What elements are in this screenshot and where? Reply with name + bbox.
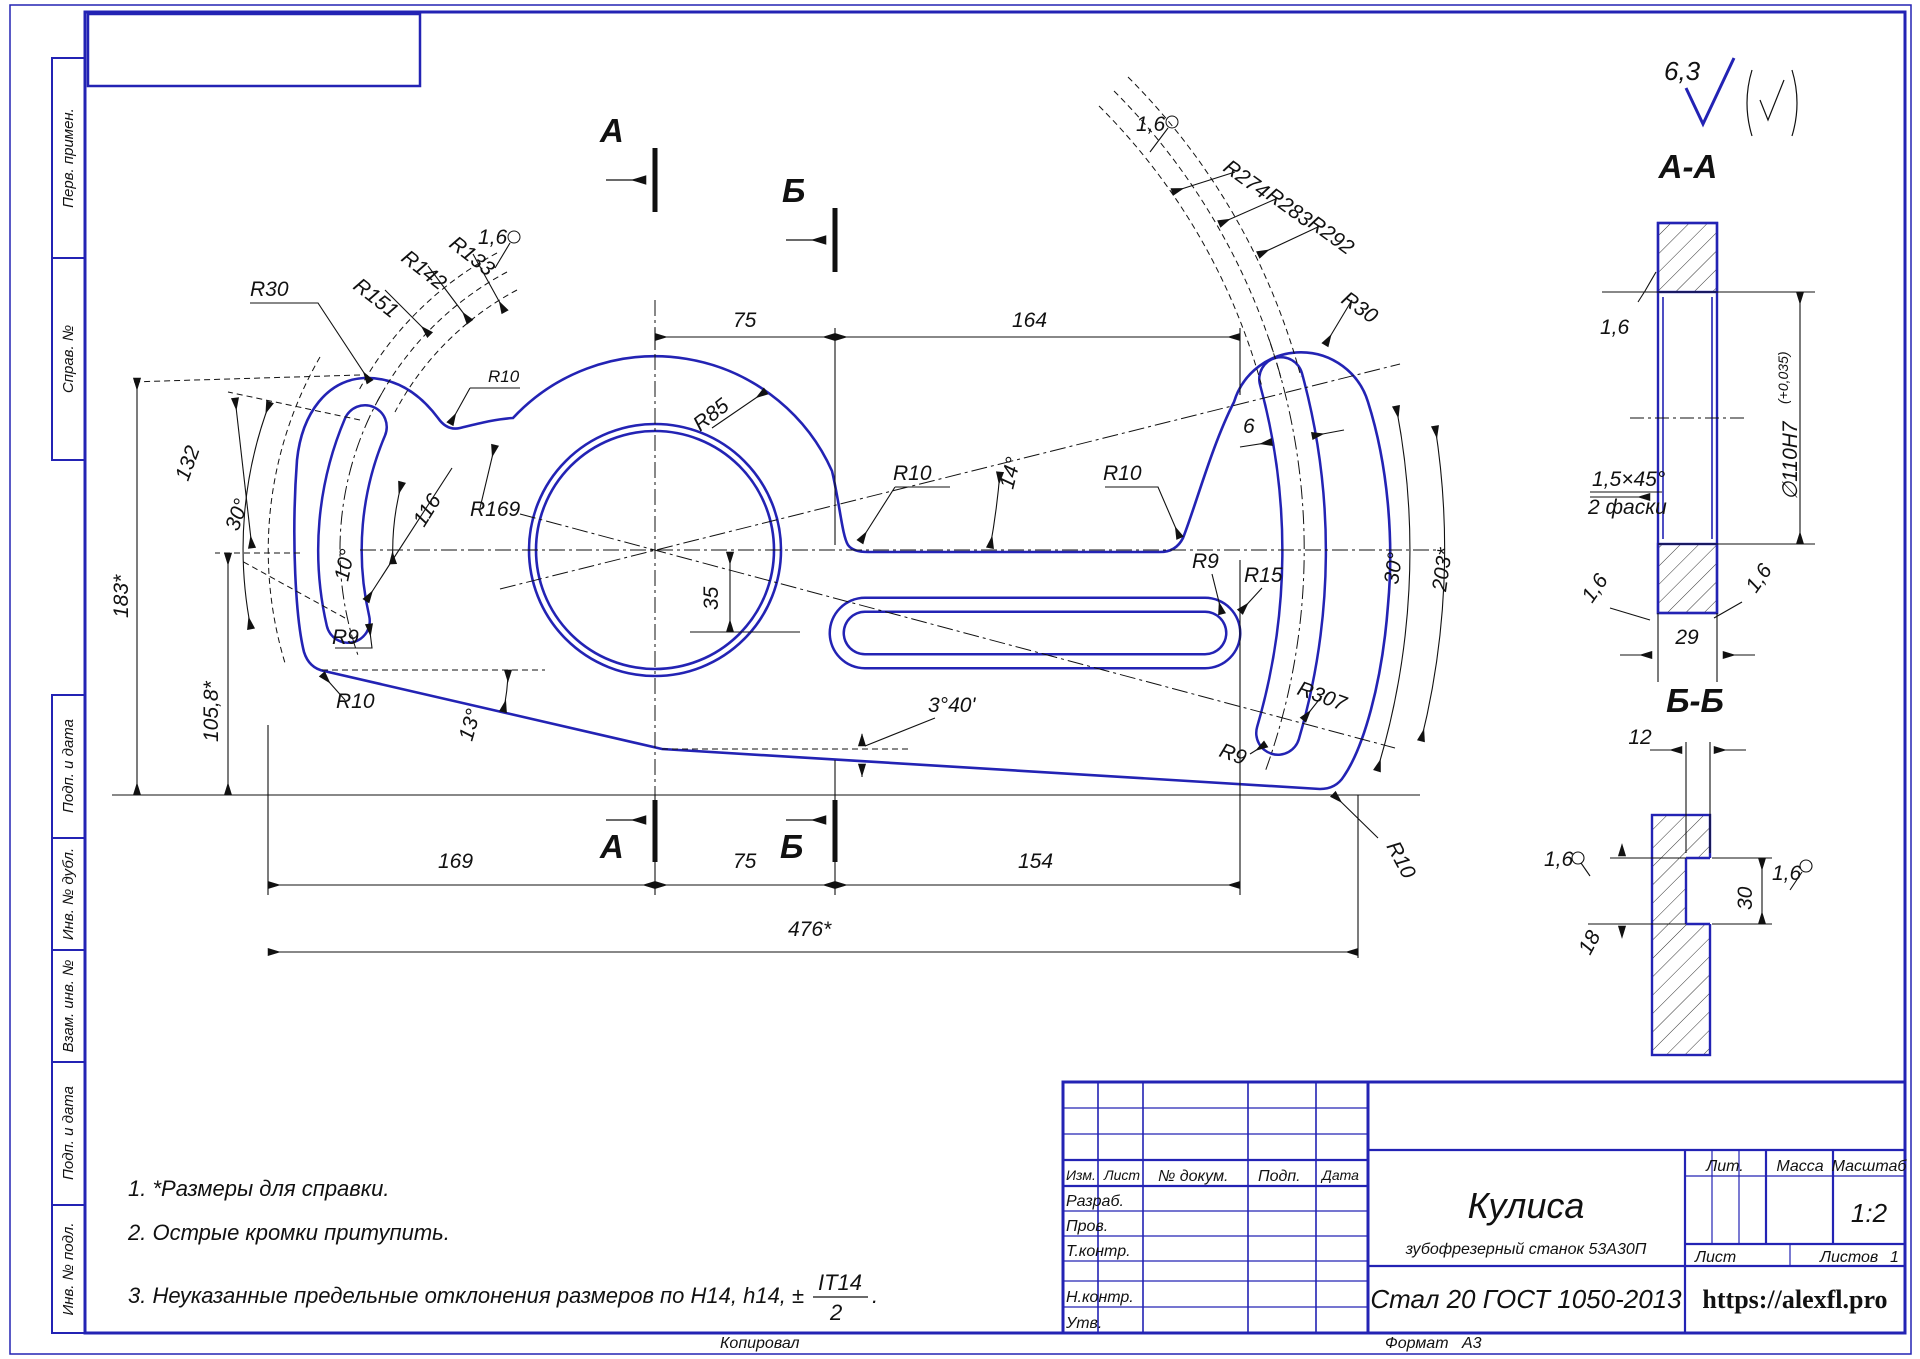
dim-label: ∅110H7: [1779, 420, 1802, 500]
dim-label: 30°: [1380, 551, 1407, 586]
tb-label: Пров.: [1066, 1218, 1108, 1235]
dim-label: 154: [1018, 850, 1053, 873]
section-markers: [606, 148, 835, 862]
dim-label: 29: [1674, 626, 1699, 649]
tb-label: Т.контр.: [1066, 1243, 1131, 1260]
dim-label: 1,6: [478, 226, 508, 249]
bb-notch-fill: [1686, 858, 1714, 924]
tb-label: Разраб.: [1066, 1193, 1124, 1210]
main-view: R30 R151 R142 R133 1,6 R10 75 164 R274 R…: [110, 77, 1457, 958]
leader-340: [865, 718, 935, 746]
main-view-labels: R30 R151 R142 R133 1,6 R10 75 164 R274 R…: [110, 112, 1457, 941]
bracket-right: [1792, 70, 1797, 136]
dim-label: 132: [171, 443, 205, 484]
tb-label: Лист: [1103, 1167, 1140, 1183]
section-letter-a-bottom: А: [599, 828, 624, 865]
copied-label: Копировал: [720, 1335, 800, 1352]
dim-label: R30: [250, 278, 289, 301]
material: Стал 20 ГОСТ 1050-2013: [1370, 1284, 1682, 1314]
tb-value: 1: [1890, 1249, 1899, 1266]
margin-label: Справ. №: [60, 325, 77, 393]
tb-label: № докум.: [1158, 1168, 1228, 1185]
format-label: Формат: [1385, 1335, 1449, 1352]
aa-hatch-bottom: [1658, 544, 1717, 613]
dim-label: R10: [893, 462, 932, 485]
dim-label: R9: [332, 626, 359, 649]
dimension-lines: [112, 128, 1445, 958]
section-bb: Б-Б 12 1,6 18 30 1,6: [1544, 682, 1812, 1055]
sheet-frame: [10, 5, 1911, 1354]
rough-circle-left: [508, 231, 520, 243]
rough-circle: [1800, 860, 1812, 872]
incline-centerline-up: [500, 364, 1400, 589]
dim-label: R151: [349, 274, 403, 323]
dim-label: 1,6: [1600, 316, 1630, 339]
margin-label: Перв. примен.: [60, 108, 77, 208]
margin-label: Подп. и дата: [60, 1086, 77, 1180]
leader-r10-arm-right: [1105, 487, 1180, 538]
tb-label: Листов: [1819, 1249, 1878, 1266]
tb-label: Масштаб: [1832, 1158, 1908, 1175]
note-line: 3. Неуказанные предельные отклонения раз…: [128, 1283, 804, 1308]
dim-label: R9: [1192, 550, 1219, 573]
ext-dashed: [130, 375, 360, 382]
dim-label: 1,6: [1741, 559, 1777, 596]
dim-6-a: [1240, 442, 1272, 447]
dim-label: 12: [1628, 726, 1652, 749]
dim-label: R292: [1304, 211, 1358, 259]
tb-label: Лист: [1694, 1249, 1736, 1266]
dim-116: [366, 468, 452, 601]
inner-frame: [85, 12, 1905, 1333]
section-letter-b-bottom: Б: [780, 828, 803, 865]
dim-label: (+0,035): [1775, 351, 1791, 404]
dim-label: R169: [470, 498, 521, 521]
tb-label: Н.контр.: [1066, 1289, 1134, 1306]
rough-tail: [1581, 863, 1590, 876]
bb-geometry: [1652, 815, 1714, 1055]
dim-label: R10: [1382, 838, 1421, 883]
dim-label: 1,5×45°: [1592, 468, 1665, 491]
rough-check: [1638, 272, 1656, 302]
dim-label: R10: [336, 690, 375, 713]
dim-label: 169: [438, 850, 473, 873]
section-title: Б-Б: [1666, 682, 1724, 719]
note-period: .: [872, 1283, 878, 1308]
margin-label: Подп. и дата: [60, 719, 77, 813]
rough-circle-right: [1166, 116, 1178, 128]
tb-row-lines: [1063, 1108, 1368, 1134]
margin-label: Инв. № дубл.: [60, 848, 77, 940]
below-frame: Копировал Формат А3: [720, 1335, 1482, 1352]
format-value: А3: [1461, 1335, 1482, 1352]
note-line: 2. Острые кромки притупить.: [127, 1220, 450, 1245]
arc-r274: [1099, 106, 1262, 387]
dim-label: 1,6: [1136, 113, 1166, 136]
title-block: Изм. Лист № докум. Подп. Дата Разраб. Пр…: [1063, 1082, 1907, 1333]
outer-border: [10, 5, 1911, 1354]
dim-label: 116: [409, 490, 446, 531]
section-title: А-А: [1658, 148, 1718, 185]
dim-label: 35: [700, 586, 723, 610]
tb-label: Подп.: [1258, 1168, 1301, 1185]
dim-label: R30: [1337, 287, 1382, 328]
tb-label: Лит.: [1705, 1158, 1743, 1175]
dim-13deg: [503, 670, 508, 712]
general-roughness: 6,3: [1664, 56, 1797, 136]
bb-bar: [1652, 815, 1710, 1055]
roughness-value: 6,3: [1664, 56, 1701, 86]
leader-r30-left: [250, 303, 370, 382]
dim-label: 3°40': [928, 694, 976, 717]
dim-label: 75: [733, 309, 757, 332]
dim-label: 30: [1734, 886, 1757, 910]
section-letter-b-top: Б: [782, 172, 805, 209]
drawing-sheet: Перв. примен. Справ. № Подп. и дата Инв.…: [0, 0, 1920, 1359]
dim-label: 13°: [455, 707, 486, 744]
section-aa: А-А 1,6 ∅110H7 (+0,035) 1,5×45° 2 фаски …: [1577, 148, 1815, 682]
dim-label: R10: [488, 367, 520, 386]
dim-label: 1,6: [1772, 862, 1802, 885]
dim-label: 1,6: [1544, 848, 1574, 871]
tb-label: Изм.: [1066, 1167, 1096, 1183]
dim-label: 476*: [788, 918, 832, 941]
note-fraction-num: IT14: [818, 1270, 862, 1295]
spare-stamp-box: [88, 14, 420, 86]
margin-label: Взам. инв. №: [60, 960, 77, 1053]
dim-label: 105,8*: [200, 680, 223, 742]
part-name: Кулиса: [1468, 1185, 1585, 1226]
leader-r15: [1240, 588, 1262, 612]
part-subtitle: зубофрезерный станок 53А30П: [1405, 1241, 1647, 1258]
section-letter-a-top: А: [599, 112, 624, 149]
tb-label: Масса: [1776, 1158, 1823, 1175]
dim-6-b: [1312, 430, 1344, 436]
rough-circle: [1572, 852, 1584, 864]
site-url: https://alexfl.pro: [1702, 1285, 1887, 1314]
tb-label: Дата: [1320, 1167, 1359, 1183]
dim-label: 2 фаски: [1587, 496, 1667, 519]
dim-label: R142: [397, 246, 451, 295]
dim-label: 6: [1243, 415, 1255, 438]
aa-hatch-top: [1658, 223, 1717, 292]
tb-label: Утв.: [1065, 1315, 1102, 1332]
margin-label: Инв. № подл.: [60, 1222, 77, 1315]
dim-label: 183*: [110, 574, 133, 618]
dim-label: R10: [1103, 462, 1142, 485]
margin-labels: Перв. примен. Справ. № Подп. и дата Инв.…: [60, 108, 77, 1315]
dim-label: 75: [733, 850, 757, 873]
left-arc-slot-fill: [340, 427, 365, 621]
scale-value: 1:2: [1851, 1198, 1888, 1228]
dim-label: R9: [1216, 739, 1249, 770]
dim-label: 164: [1012, 309, 1047, 332]
note-line: 1. *Размеры для справки.: [128, 1176, 390, 1201]
leader-r10-br: [1333, 794, 1378, 838]
notes: 1. *Размеры для справки. 2. Острые кромк…: [127, 1176, 878, 1325]
dim-label: 14°: [996, 455, 1026, 491]
dim-label: 1,6: [1577, 569, 1613, 606]
ext-dashed: [228, 392, 360, 420]
part-slots: [340, 379, 1304, 733]
dim-label: R15: [1244, 564, 1283, 587]
dim-label: 18: [1574, 927, 1605, 959]
dim-label: 203*: [1428, 546, 1457, 594]
rough-tail: [1610, 608, 1650, 620]
bracket-left: [1747, 70, 1752, 136]
dim-label: 30°: [221, 496, 253, 534]
check-small-icon: [1760, 80, 1784, 120]
note-fraction-den: 2: [829, 1300, 842, 1325]
